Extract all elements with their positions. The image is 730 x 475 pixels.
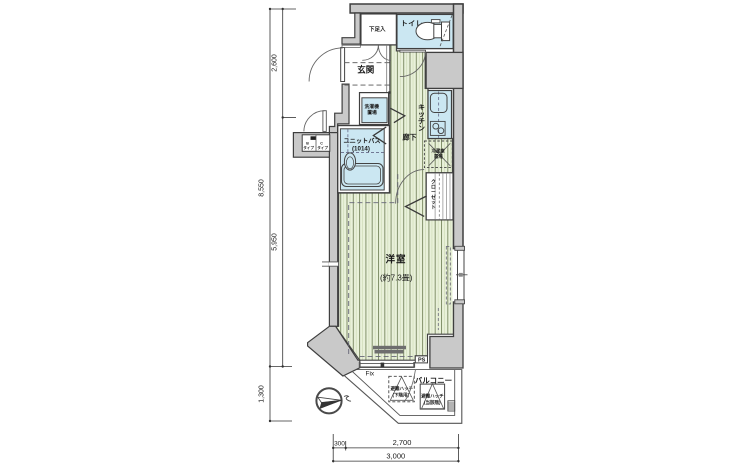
svg-text:(1014): (1014) xyxy=(352,146,370,153)
svg-text:Fix: Fix xyxy=(366,371,375,378)
svg-text:キ: キ xyxy=(418,104,425,112)
svg-text:ユニットバス: ユニットバス xyxy=(344,137,381,145)
svg-text:廊下: 廊下 xyxy=(403,132,417,141)
svg-text:洋室: 洋室 xyxy=(386,254,407,266)
svg-text:PS: PS xyxy=(418,358,426,364)
svg-text:避難ハッチ: 避難ハッチ xyxy=(421,393,444,400)
svg-text:8,550: 8,550 xyxy=(259,179,266,197)
svg-text:2,700: 2,700 xyxy=(393,438,412,447)
svg-text:置場: 置場 xyxy=(434,153,443,160)
svg-text:下足入: 下足入 xyxy=(369,25,386,33)
svg-text:ロ: ロ xyxy=(431,185,436,191)
svg-text:置場: 置場 xyxy=(367,109,377,116)
svg-text:ン: ン xyxy=(418,125,425,133)
svg-text:3,000: 3,000 xyxy=(386,451,405,460)
svg-text:(当該階): (当該階) xyxy=(424,399,441,406)
svg-text:玄関: 玄関 xyxy=(357,65,374,75)
svg-text:ゼ: ゼ xyxy=(431,194,436,201)
svg-text:2,600: 2,600 xyxy=(272,54,279,72)
svg-text:洗濯機: 洗濯機 xyxy=(365,103,380,110)
svg-text:ク: ク xyxy=(431,179,436,186)
svg-text:1,300: 1,300 xyxy=(259,385,266,403)
svg-text:(約7.3畳): (約7.3畳) xyxy=(380,272,413,282)
svg-text:タイプ: タイプ xyxy=(303,145,314,150)
svg-text:タイプ: タイプ xyxy=(317,145,328,150)
svg-text:ト: ト xyxy=(431,205,436,211)
svg-text:5,950: 5,950 xyxy=(272,233,279,251)
svg-text:ッ: ッ xyxy=(418,112,425,119)
svg-text:チ: チ xyxy=(418,118,425,126)
svg-text:300: 300 xyxy=(334,440,345,447)
